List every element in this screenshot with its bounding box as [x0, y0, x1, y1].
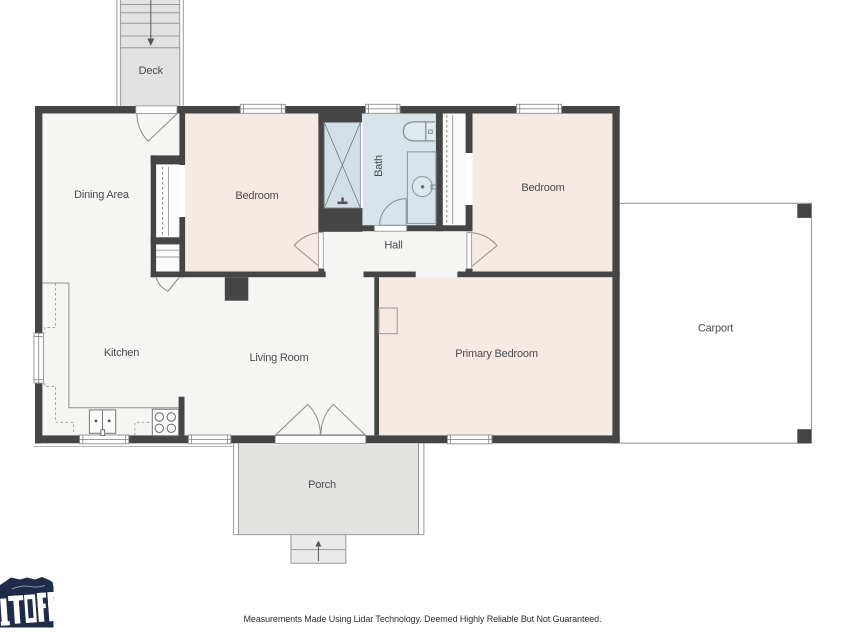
svg-text:Measurements Made Using Lidar: Measurements Made Using Lidar Technology… [244, 614, 602, 624]
svg-text:Primary Bedroom: Primary Bedroom [455, 348, 538, 360]
svg-text:Living Room: Living Room [250, 352, 309, 364]
svg-text:Porch: Porch [308, 479, 336, 491]
svg-text:Hall: Hall [384, 240, 402, 252]
svg-text:Bedroom: Bedroom [235, 190, 278, 202]
svg-text:Carport: Carport [698, 323, 733, 335]
svg-text:Deck: Deck [139, 65, 164, 77]
svg-text:Bedroom: Bedroom [521, 182, 564, 194]
svg-text:Bath: Bath [373, 155, 385, 177]
svg-text:Dining Area: Dining Area [74, 189, 130, 201]
svg-text:Kitchen: Kitchen [104, 347, 139, 359]
